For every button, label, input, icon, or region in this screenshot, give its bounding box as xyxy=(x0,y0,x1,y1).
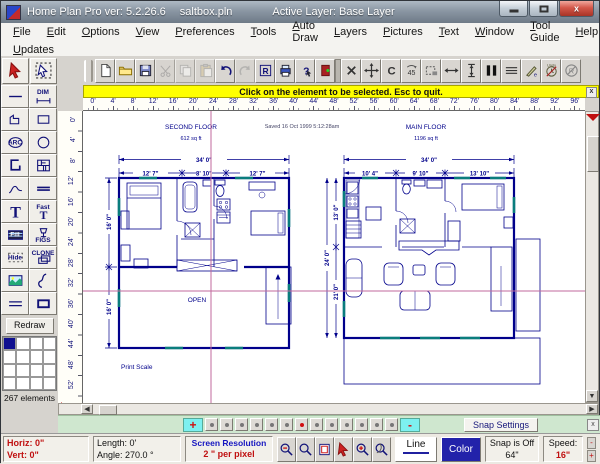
hruler-tick: 52' xyxy=(344,98,364,110)
exit-button[interactable] xyxy=(315,59,335,83)
plan2-seg3: 13' 10" xyxy=(470,171,489,177)
pointer-mode-button[interactable] xyxy=(334,437,353,462)
hruler-tick: 80' xyxy=(485,98,505,110)
hruler-tick: 24' xyxy=(203,98,223,110)
menu-item-layers[interactable]: Layers xyxy=(326,26,375,38)
menu-item-text[interactable]: Text xyxy=(431,26,467,38)
svg-text:T: T xyxy=(10,204,21,220)
magm-icon xyxy=(279,442,294,457)
paste-button[interactable] xyxy=(195,59,215,83)
scroll-right-button[interactable]: ▶ xyxy=(586,404,598,414)
plan2-side-dim1: 13' 0" xyxy=(334,204,340,220)
svg-text:Undo: Undo xyxy=(547,63,556,67)
dimension-tool[interactable]: DIM xyxy=(29,85,57,108)
zoom-level-6[interactable] xyxy=(280,418,293,431)
textT-icon: T xyxy=(7,203,24,220)
open-room-label: OPEN xyxy=(188,297,207,304)
svg-text:45: 45 xyxy=(407,70,415,77)
swatch-cell[interactable] xyxy=(43,337,56,350)
line-style-label: Line xyxy=(407,439,426,450)
plan1-title: SECOND FLOOR xyxy=(165,124,217,131)
swatch-cell[interactable] xyxy=(30,350,43,363)
swatch-cell[interactable] xyxy=(30,337,43,350)
paste-icon xyxy=(198,63,213,78)
plan2-side-dim3: 21' 0" xyxy=(334,284,340,300)
plan-main-floor: MAIN FLOOR 1196 sq ft 34' 0" 10' 4" 9' 1… xyxy=(325,124,540,384)
message-text: Click on the element to be selected. Esc… xyxy=(239,87,443,97)
app-logo-icon xyxy=(6,5,21,20)
picture-tool[interactable] xyxy=(1,269,29,292)
zoom-in-button[interactable] xyxy=(353,437,372,462)
swatch-cell-active[interactable] xyxy=(3,337,16,350)
stretch-vertical-button[interactable] xyxy=(461,59,481,83)
status-bar: Horiz: 0" Vert: 0" Length: 0' Angle: 270… xyxy=(1,433,600,464)
menu-item-file[interactable]: File xyxy=(5,26,39,38)
arc-icon xyxy=(7,134,24,151)
fill-tool[interactable]: Fill xyxy=(1,223,29,246)
plan2-seg2: 9' 10" xyxy=(413,171,429,177)
redraw-button[interactable]: R xyxy=(255,59,275,83)
maximize-icon xyxy=(539,5,548,12)
vertical-ruler: 0'4'8'12'16'20'24'28'32'36'40'44'48'52' xyxy=(58,111,83,403)
circle-tool[interactable] xyxy=(29,131,57,154)
zoom-level-4[interactable] xyxy=(250,418,263,431)
varrow-icon xyxy=(464,63,479,78)
zoom-level-10[interactable] xyxy=(340,418,353,431)
redo-button[interactable] xyxy=(235,59,255,83)
main-toolbar: R?C45eUndoR xyxy=(1,56,599,85)
harrow-icon xyxy=(444,63,459,78)
tool-palette: DIMARCTTFastFillFIGSHideCLONE Redraw 267… xyxy=(1,85,58,403)
fit-page-button[interactable] xyxy=(315,437,334,462)
select-element-tool[interactable] xyxy=(30,58,57,84)
plan-second-floor: SECOND FLOOR 612 sq ft 34' 0" 12' 7" 8' … xyxy=(105,124,291,348)
vruler-tick: 44' xyxy=(68,339,75,348)
menu-item-tool-guide[interactable]: Tool Guide xyxy=(522,20,567,44)
page-icon xyxy=(98,63,113,78)
arc-tool[interactable]: ARC xyxy=(1,131,29,154)
swatch-cell[interactable] xyxy=(3,377,16,390)
zoom-level-5[interactable] xyxy=(265,418,278,431)
hruler-tick: 32' xyxy=(244,98,264,110)
maximize-button[interactable] xyxy=(529,1,558,17)
move-button[interactable] xyxy=(361,59,381,83)
hruler-tick: 64' xyxy=(404,98,424,110)
delete-button[interactable] xyxy=(341,59,361,83)
door-tool-button[interactable] xyxy=(481,59,501,83)
length-angle-panel: Length: 0' Angle: 270.0 ° xyxy=(93,436,181,462)
pan-down-arrow-icon[interactable] xyxy=(586,114,600,121)
horiz-value: Horiz: 0" xyxy=(7,438,85,450)
cursor_red-icon xyxy=(7,62,24,79)
hruler-tick: 12' xyxy=(143,98,163,110)
resolution-value: 2 " per pixel xyxy=(189,449,269,461)
figures-tool[interactable]: FIGS xyxy=(29,223,57,246)
ramp-tool[interactable] xyxy=(1,177,29,200)
horizontal-ruler: 0'4'8'12'16'20'24'28'32'36'40'44'48'52'5… xyxy=(83,98,585,111)
menu-item-auto-draw[interactable]: Auto Draw xyxy=(284,20,326,44)
menu-item-pictures[interactable]: Pictures xyxy=(375,26,431,38)
zoom-level-12[interactable] xyxy=(370,418,383,431)
plan1-seg1: 12' 7" xyxy=(143,171,159,177)
hruler-tick: 68' xyxy=(424,98,444,110)
zoom-level-7-selected[interactable] xyxy=(295,418,308,431)
message-bar: Click on the element to be selected. Esc… xyxy=(83,85,599,98)
active-layer-label: Active Layer: Base Layer xyxy=(272,6,394,18)
new-button[interactable] xyxy=(95,59,115,83)
vruler-tick: 12' xyxy=(68,176,75,185)
hruler-tick: 56' xyxy=(364,98,384,110)
vruler-tick: 0' xyxy=(70,117,77,122)
pen-icon: e xyxy=(524,63,539,78)
vruler-tick: 20' xyxy=(68,217,75,226)
zoom-level-bar: + - Snap Settings x xyxy=(58,415,600,433)
nor-icon: R xyxy=(564,63,579,78)
clone-tool[interactable]: CLONE xyxy=(29,246,57,269)
svg-text:T: T xyxy=(39,209,47,220)
hruler-tick: 72' xyxy=(444,98,464,110)
elements-count: 267 elements xyxy=(1,393,58,403)
pattern-swatch-grid xyxy=(2,336,57,391)
redraw-button[interactable]: Redraw xyxy=(6,318,54,334)
swatch-cell[interactable] xyxy=(43,364,56,377)
menu-item-tools[interactable]: Tools xyxy=(243,26,285,38)
undo-button[interactable] xyxy=(215,59,235,83)
multi-line-button[interactable] xyxy=(501,59,521,83)
horizontal-scrollbar[interactable]: ◀ ▶ xyxy=(58,403,599,415)
open-button[interactable] xyxy=(115,59,135,83)
hruler-tick: 96' xyxy=(565,98,585,110)
vruler-tick: 24' xyxy=(68,237,75,246)
rot45-icon: 45 xyxy=(404,63,419,78)
swatch-cell[interactable] xyxy=(3,350,16,363)
picture-icon xyxy=(7,272,24,289)
hruler-tick: 8' xyxy=(123,98,143,110)
hruler-tick: 48' xyxy=(324,98,344,110)
hide-tool[interactable]: Hide xyxy=(1,246,29,269)
close-button[interactable]: x xyxy=(559,1,594,17)
freehand-icon xyxy=(35,272,52,289)
xdel-icon xyxy=(344,63,359,78)
rect-icon xyxy=(35,111,52,128)
vruler-tick: 40' xyxy=(68,319,75,328)
parallel-icon xyxy=(7,295,24,312)
vruler-tick: 32' xyxy=(68,278,75,287)
zoom-level-2[interactable] xyxy=(220,418,233,431)
close-icon: x xyxy=(574,4,579,13)
ramp-icon xyxy=(7,180,24,197)
undo-icon xyxy=(218,63,233,78)
svg-text:e: e xyxy=(533,73,536,78)
line-style-sample xyxy=(403,452,429,454)
folder-icon xyxy=(118,63,133,78)
hruler-tick: 76' xyxy=(464,98,484,110)
vertical-scrollbar[interactable]: ▼ xyxy=(585,111,599,403)
hruler-tick: 4' xyxy=(103,98,123,110)
hruler-tick: 20' xyxy=(183,98,203,110)
snap-value: 64" xyxy=(489,450,535,462)
hide-icon xyxy=(7,249,24,266)
swatch-cell[interactable] xyxy=(16,364,29,377)
print-button[interactable] xyxy=(275,59,295,83)
move-icon xyxy=(364,63,379,78)
swatch-cell[interactable] xyxy=(43,350,56,363)
hruler-tick: 40' xyxy=(284,98,304,110)
filled-rectangle-tool[interactable] xyxy=(29,292,57,315)
double-line-tool[interactable] xyxy=(29,177,57,200)
cut-button[interactable] xyxy=(155,59,175,83)
hruler-tick: 0' xyxy=(83,98,103,110)
figs-icon xyxy=(35,226,52,243)
rectangle-tool[interactable] xyxy=(29,108,57,131)
svg-text:R: R xyxy=(262,66,268,76)
windows-doors-tool[interactable] xyxy=(29,154,57,177)
saved-timestamp: Saved 16 Oct 1999 5:12:28am xyxy=(265,124,340,130)
zoom-level-13[interactable] xyxy=(385,418,398,431)
zoom-out-button[interactable] xyxy=(277,437,296,462)
wall-tool[interactable] xyxy=(1,154,29,177)
plan2-side-dim2: 24' 0" xyxy=(325,250,331,266)
swatch-cell[interactable] xyxy=(16,350,29,363)
polyline-tool[interactable] xyxy=(1,108,29,131)
pagefit-icon xyxy=(317,442,332,457)
snap-status: Snap is Off xyxy=(489,438,535,450)
zoom-level-11[interactable] xyxy=(355,418,368,431)
help-icon: ? xyxy=(298,63,313,78)
menu-item-window[interactable]: Window xyxy=(467,26,522,38)
speed-minus-button[interactable]: - xyxy=(587,437,596,449)
region-icon xyxy=(424,63,439,78)
color-button[interactable]: Color xyxy=(441,437,481,462)
magp-icon xyxy=(355,442,370,457)
message-close-icon[interactable]: x xyxy=(586,87,597,98)
freehand-tool[interactable] xyxy=(29,269,57,292)
resolution-panel: Screen Resolution 2 " per pixel xyxy=(185,436,273,462)
corner-filler xyxy=(1,403,58,433)
hruler-tick: 92' xyxy=(545,98,565,110)
minimize-button[interactable] xyxy=(499,1,528,17)
dimsmall-icon xyxy=(35,88,52,105)
zoom-previous-button[interactable] xyxy=(372,437,391,462)
coords-panel: Horiz: 0" Vert: 0" xyxy=(3,436,89,462)
swatch-cell[interactable] xyxy=(30,377,43,390)
zoom-window-button[interactable] xyxy=(296,437,315,462)
hruler-tick: 84' xyxy=(505,98,525,110)
zoom-minus-button[interactable]: - xyxy=(400,418,420,432)
mag-icon xyxy=(298,442,313,457)
menu-row-1: FileEditOptionsViewPreferencesToolsAuto … xyxy=(1,23,599,41)
poly-icon xyxy=(7,111,24,128)
zoom-level-9[interactable] xyxy=(325,418,338,431)
zoom-level-3[interactable] xyxy=(235,418,248,431)
menu-item-edit[interactable]: Edit xyxy=(39,26,74,38)
copy-icon xyxy=(178,63,193,78)
disk-icon xyxy=(138,63,153,78)
redo-icon xyxy=(238,63,253,78)
speed-label: Speed: xyxy=(547,438,579,450)
menu-item-view[interactable]: View xyxy=(128,26,168,38)
zoom-level-radios xyxy=(203,418,398,431)
line-tool[interactable] xyxy=(1,85,29,108)
plan2-width-total: 34' 0" xyxy=(421,158,437,164)
palette-grid: DIMARCTTFastFillFIGSHideCLONE xyxy=(1,85,57,315)
scroll-left-button[interactable]: ◀ xyxy=(81,404,93,414)
plan2-seg1: 10' 4" xyxy=(362,171,378,177)
exit-icon xyxy=(318,63,333,78)
select-region-button[interactable] xyxy=(421,59,441,83)
dbl-icon xyxy=(35,180,52,197)
printer-icon xyxy=(278,63,293,78)
plan1-area: 612 sq ft xyxy=(180,136,202,142)
print-scale-label: Print Scale xyxy=(121,364,153,371)
window-title: Home Plan Pro ver: 5.2.26.6 xyxy=(27,6,166,18)
clone-icon xyxy=(35,249,52,266)
hruler-tick: 60' xyxy=(384,98,404,110)
clock-icon: Undo xyxy=(544,63,559,78)
cursor_red-icon xyxy=(336,442,351,457)
rotc-icon: C xyxy=(384,63,399,78)
zoom-level-1[interactable] xyxy=(205,418,218,431)
menu-item-options[interactable]: Options xyxy=(74,26,128,38)
menu-item-updates[interactable]: Updates xyxy=(5,44,62,56)
draw-pen-button[interactable]: e xyxy=(521,59,541,83)
speed-plus-button[interactable]: + xyxy=(587,450,596,462)
menu-item-help[interactable]: Help xyxy=(567,26,600,38)
vert-value: Vert: 0" xyxy=(7,450,85,462)
plan1-side-dim1: 16' 0" xyxy=(107,214,113,230)
rbox-icon: R xyxy=(258,63,273,78)
swatch-cell[interactable] xyxy=(3,364,16,377)
save-button[interactable] xyxy=(135,59,155,83)
drawing-canvas[interactable]: Saved 16 Oct 1999 5:12:28am Print Scale … xyxy=(83,111,585,403)
hruler-tick: 88' xyxy=(525,98,545,110)
speed-value: 16" xyxy=(547,450,579,462)
zoom-plus-button[interactable]: + xyxy=(183,418,203,432)
vruler-tick: 16' xyxy=(68,197,75,206)
plan2-area: 1196 sq ft xyxy=(414,136,438,142)
vruler-tick: 28' xyxy=(68,258,75,267)
text-tool[interactable]: T xyxy=(1,200,29,223)
speed-steppers: - + xyxy=(587,437,596,462)
vruler-tick: 36' xyxy=(68,299,75,308)
help-pointer-button[interactable]: ? xyxy=(295,59,315,83)
swatch-cell[interactable] xyxy=(43,377,56,390)
vruler-tick: 4' xyxy=(70,137,77,142)
snap-settings-button[interactable]: Snap Settings xyxy=(464,418,538,432)
swatch-cell[interactable] xyxy=(30,364,43,377)
menu-item-preferences[interactable]: Preferences xyxy=(167,26,242,38)
zoom-bar-close-icon[interactable]: x xyxy=(587,419,599,431)
no-redraw-button[interactable]: R xyxy=(561,59,581,83)
hruler-tick: 28' xyxy=(224,98,244,110)
hruler-tick: 36' xyxy=(264,98,284,110)
plan2-title: MAIN FLOOR xyxy=(406,124,447,131)
hruler-tick: 44' xyxy=(304,98,324,110)
magr-icon xyxy=(374,442,389,457)
cursor_sel-icon xyxy=(35,62,52,79)
plan1-seg2: 8' 10" xyxy=(196,171,212,177)
fillic-icon xyxy=(7,226,24,243)
windoor-icon xyxy=(35,157,52,174)
palette-select-buttons xyxy=(1,58,58,84)
mlines-icon xyxy=(504,63,519,78)
scroll-down-button[interactable]: ▼ xyxy=(586,390,598,402)
line-style-button[interactable]: Line xyxy=(395,437,437,462)
horizontal-scroll-thumb[interactable] xyxy=(99,405,117,415)
doorbars-icon xyxy=(484,63,499,78)
hruler-tick: 16' xyxy=(163,98,183,110)
scissors-icon xyxy=(158,63,173,78)
svg-text:C: C xyxy=(387,66,395,78)
rotate-45-button[interactable]: 45 xyxy=(401,59,421,83)
copy-button[interactable] xyxy=(175,59,195,83)
zoom-level-8[interactable] xyxy=(310,418,323,431)
swatch-cell[interactable] xyxy=(16,377,29,390)
vruler-tick: 48' xyxy=(68,360,75,369)
textTs-icon: T xyxy=(35,203,52,220)
rotate-button[interactable]: C xyxy=(381,59,401,83)
snap-panel[interactable]: Snap is Off 64" xyxy=(485,436,539,462)
speed-panel: Speed: 16" xyxy=(543,436,583,462)
wall-icon xyxy=(7,157,24,174)
plan1-seg3: 12' 7" xyxy=(250,171,266,177)
fillrect-icon xyxy=(35,295,52,312)
select-tool[interactable] xyxy=(2,58,29,84)
vruler-tick: 52' xyxy=(68,380,75,389)
undo-timer-button[interactable]: Undo xyxy=(541,59,561,83)
toolbar-icons: R?C45eUndoR xyxy=(95,59,581,83)
plan1-side-dim2: 16' 0" xyxy=(107,299,113,315)
toolbar-grip xyxy=(84,60,93,82)
minimize-icon xyxy=(509,9,518,12)
parallel-lines-tool[interactable] xyxy=(1,292,29,315)
plan1-width-total: 34' 0" xyxy=(196,158,212,164)
circle-icon xyxy=(35,134,52,151)
swatch-cell[interactable] xyxy=(16,337,29,350)
vertical-scroll-thumb[interactable] xyxy=(587,136,599,172)
stretch-horizontal-button[interactable] xyxy=(441,59,461,83)
home-plan-pro-window: { "window": { "title": "Home Plan Pro ve… xyxy=(0,0,600,463)
zoom-buttons xyxy=(277,437,391,462)
length-value: Length: 0' xyxy=(97,438,177,450)
window-filename: saltbox.pln xyxy=(180,6,233,18)
vruler-tick: 8' xyxy=(70,158,77,163)
resolution-title: Screen Resolution xyxy=(189,438,269,449)
menu-bar: FileEditOptionsViewPreferencesToolsAuto … xyxy=(1,23,599,57)
floor-plan-drawing: Saved 16 Oct 1999 5:12:28am Print Scale … xyxy=(83,111,585,403)
fast-text-tool[interactable]: TFast xyxy=(29,200,57,223)
hline-icon xyxy=(7,88,24,105)
angle-value: Angle: 270.0 ° xyxy=(97,450,177,462)
